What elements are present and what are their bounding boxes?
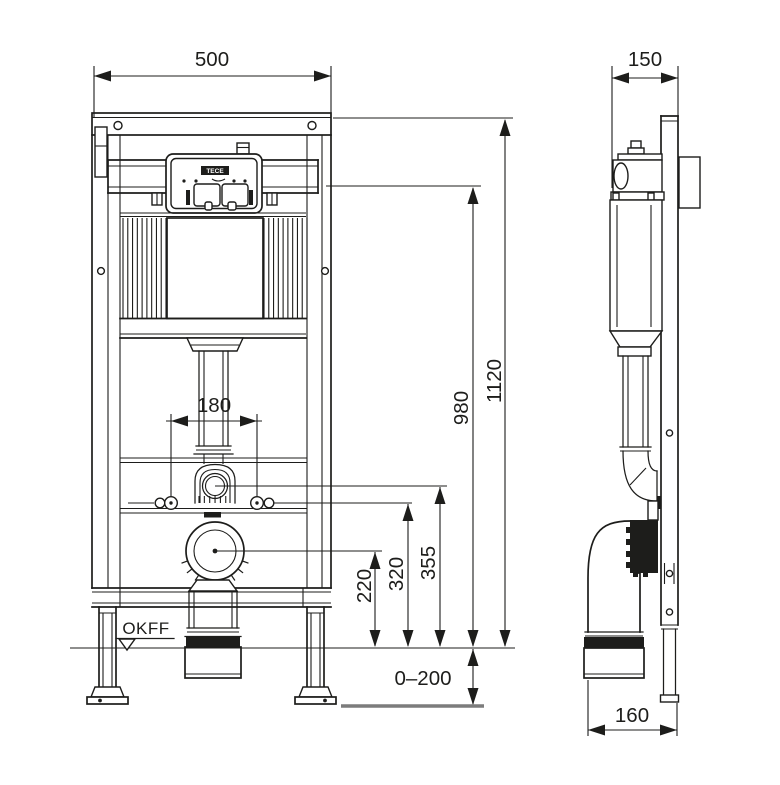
dim-front-width: 500 (94, 48, 331, 117)
flush-elbow-outer (623, 451, 657, 501)
drain-seal-ring (186, 637, 240, 647)
dim-bolt-spacing: 180 (166, 394, 262, 496)
corrugated-connector (630, 520, 658, 573)
valve-cap-base (628, 148, 644, 154)
drain-elbow-outer (588, 521, 630, 632)
actuation-unit: TECE (166, 143, 262, 213)
upright-hole-left (98, 268, 105, 275)
flush-elbow-inner (648, 451, 657, 471)
cistern-access-shaft (167, 218, 263, 319)
rail-hole-1 (666, 430, 672, 436)
dim-label-220: 220 (353, 569, 376, 603)
brand-logo-text: TECE (206, 168, 224, 175)
fixing-hole-outer-left (155, 498, 165, 508)
side-foot-cap (661, 695, 679, 702)
rail-hole-2 (666, 570, 672, 576)
drain-elbow-inner (634, 573, 640, 632)
drain-assembly-side (584, 520, 658, 678)
cistern-taper (610, 331, 662, 347)
button-hook-left (205, 202, 212, 210)
filling-valve-stub (237, 143, 249, 154)
dim-label-160: 160 (615, 704, 649, 727)
wc-fixing-row (128, 497, 412, 510)
elbow-adapter (648, 501, 658, 520)
cistern-top-plate (618, 154, 662, 160)
pin-right (249, 190, 253, 205)
rail-hole-3 (666, 609, 672, 615)
cistern-body-side (610, 200, 662, 331)
upright-hole-right (322, 268, 329, 275)
pin-left (186, 190, 190, 205)
fixing-hole-outer-right (264, 498, 274, 508)
valve-cap-top (631, 141, 641, 148)
foot-plate-right (295, 697, 336, 704)
drain-tab (204, 512, 221, 518)
dim-fixing-height: 320 (385, 504, 413, 647)
floor-reference: OKFF (70, 619, 515, 706)
wall-anchor-plate (95, 127, 107, 177)
dim-label-355: 355 (417, 546, 440, 580)
drain-seal-ring-side (584, 637, 644, 648)
technical-drawing: TECE (0, 0, 780, 780)
dim-floor-adjust: 0–200 (394, 649, 478, 705)
top-bar-hole-left (114, 122, 122, 130)
dim-label-320: 320 (385, 557, 408, 591)
cistern-side (610, 141, 664, 520)
dim-label-180: 180 (197, 394, 231, 417)
frame-top-bar (92, 113, 331, 135)
drain-assembly-front (182, 512, 248, 678)
drain-flare (189, 580, 237, 591)
front-view: TECE (87, 113, 412, 704)
floor-level-label: OKFF (122, 619, 169, 638)
dim-label-1120: 1120 (483, 359, 506, 403)
cistern-oval-detail (614, 163, 628, 189)
foot-plate-left (87, 697, 128, 704)
dim-label-0-200: 0–200 (394, 667, 451, 690)
wall-bracket (679, 157, 700, 208)
dim-label-980: 980 (450, 391, 473, 425)
dim-label-500: 500 (195, 48, 229, 71)
button-hook-right (228, 202, 236, 210)
foot-right (295, 607, 336, 704)
side-view (584, 116, 700, 702)
drawing-page: TECE (0, 0, 780, 780)
outlet-flange (618, 347, 651, 356)
top-bar-hole-right (308, 122, 316, 130)
drain-socket (185, 647, 241, 678)
dim-label-150: 150 (628, 48, 662, 71)
side-rail (657, 116, 700, 702)
dimensions: 500 150 180 1120 (94, 48, 678, 736)
